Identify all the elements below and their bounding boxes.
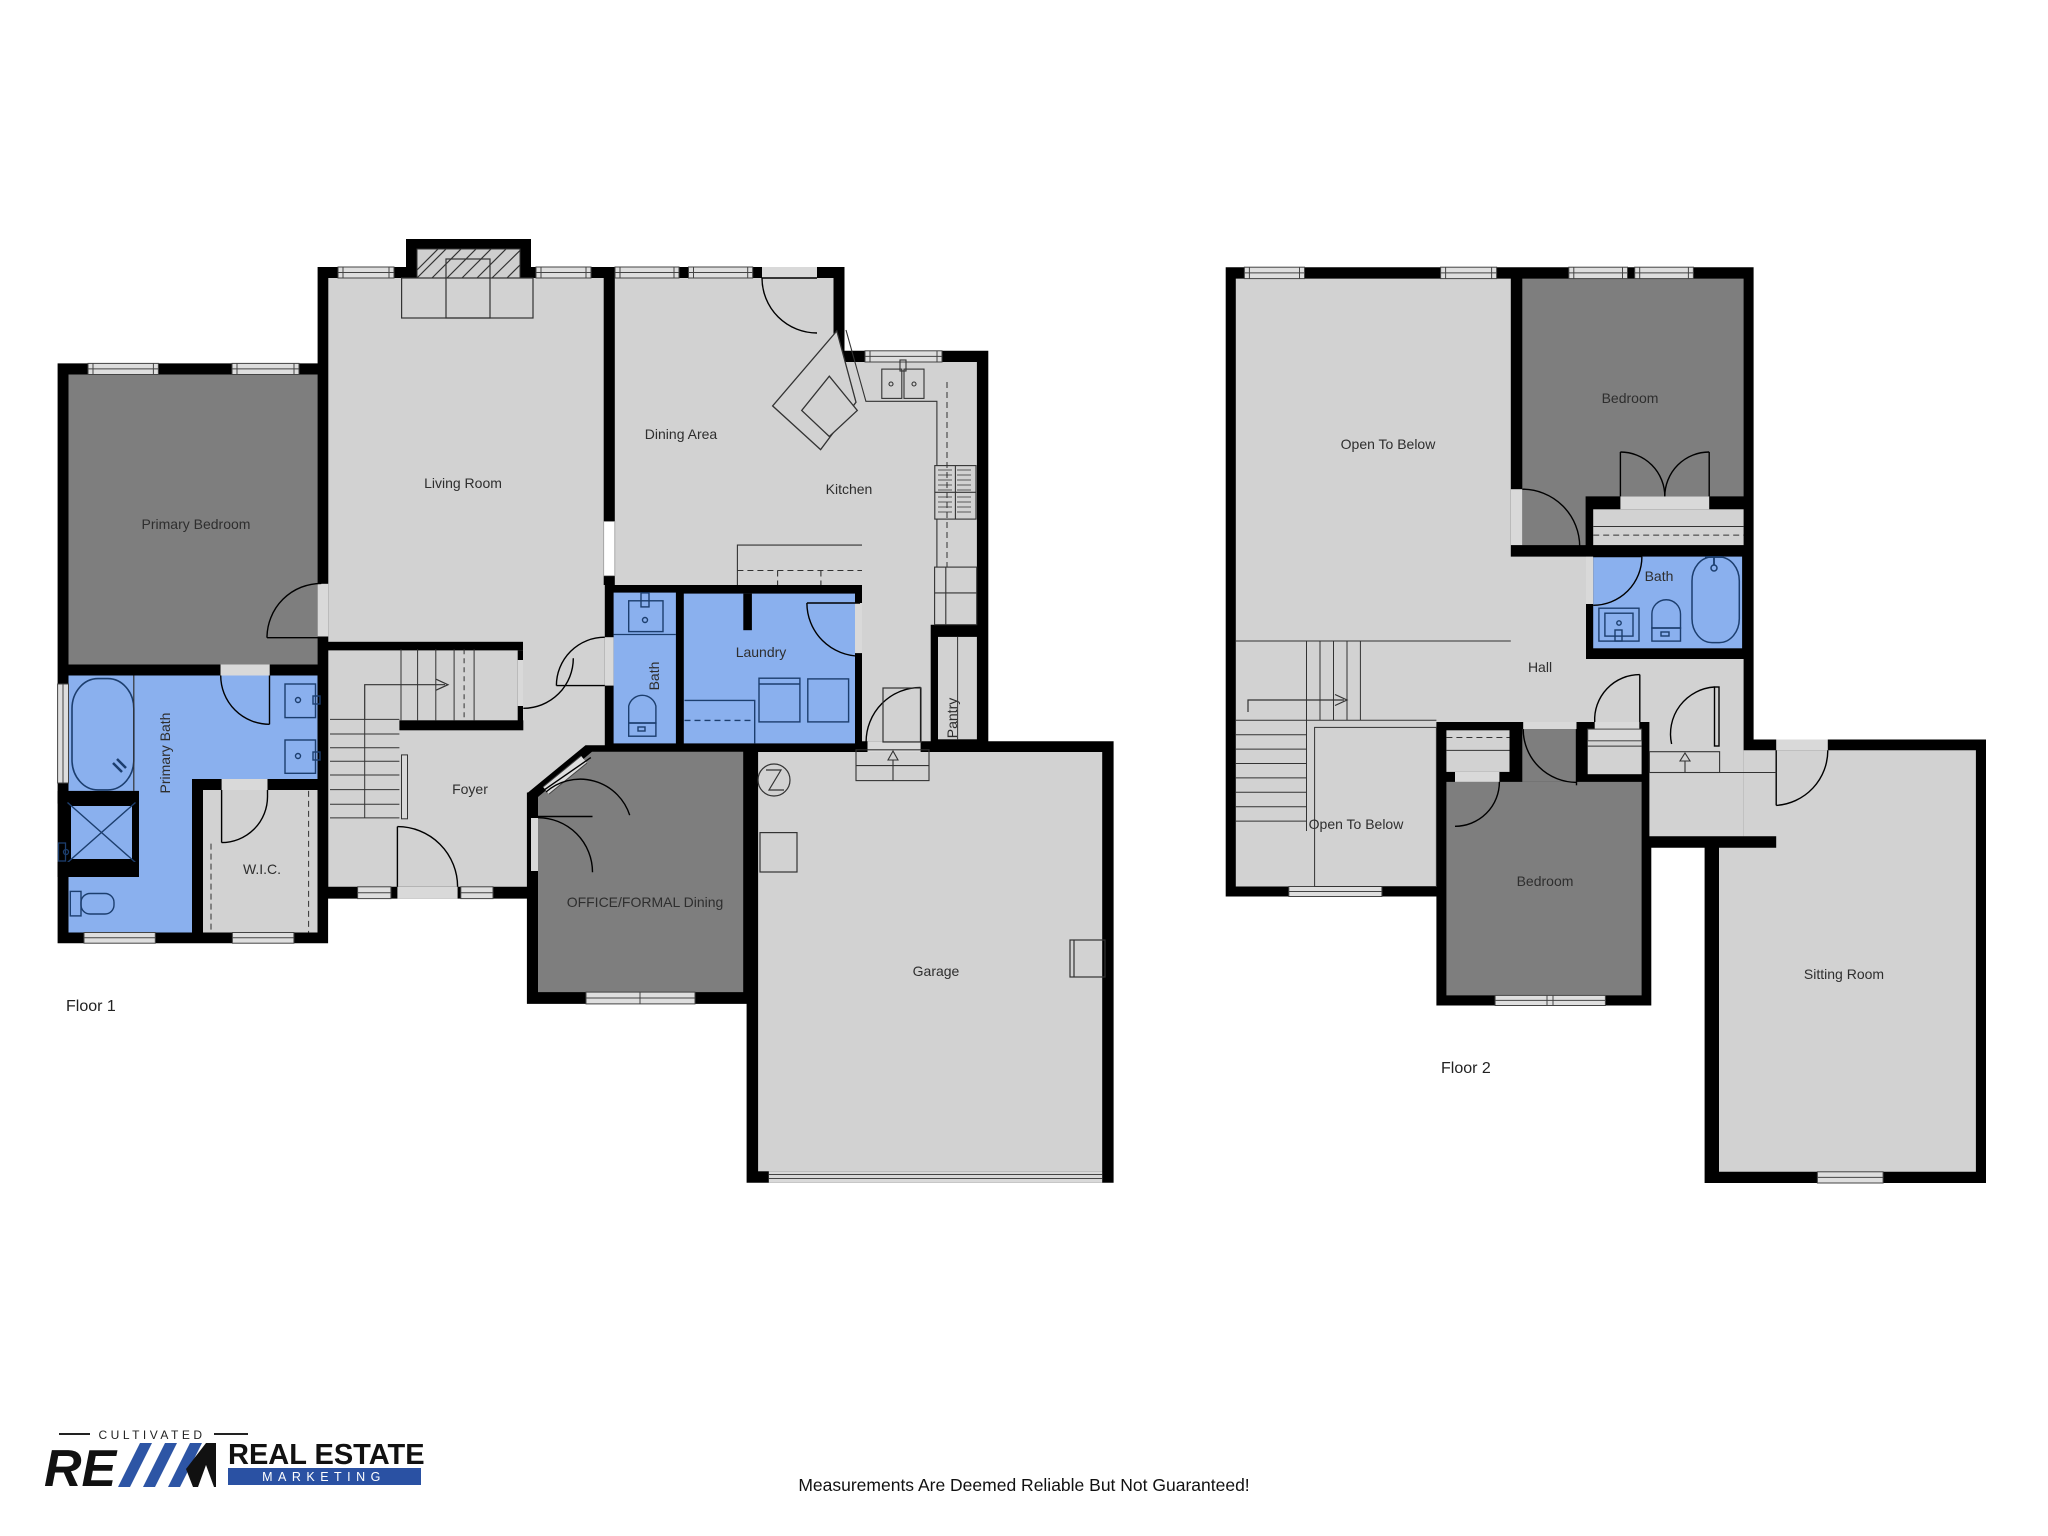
svg-text:REAL ESTATE: REAL ESTATE [228, 1439, 425, 1471]
svg-text:Foyer: Foyer [452, 781, 488, 797]
svg-text:Laundry: Laundry [736, 644, 787, 660]
svg-text:Bath: Bath [646, 662, 662, 691]
svg-text:MARKETING: MARKETING [262, 1470, 386, 1484]
svg-text:OFFICE/FORMAL Dining: OFFICE/FORMAL Dining [567, 894, 724, 910]
svg-text:Pantry: Pantry [944, 698, 960, 738]
svg-text:Primary Bath: Primary Bath [157, 713, 173, 794]
svg-text:Bath: Bath [1645, 568, 1674, 584]
svg-text:Measurements Are Deemed Reliab: Measurements Are Deemed Reliable But Not… [798, 1475, 1249, 1495]
svg-text:Sitting Room: Sitting Room [1804, 966, 1884, 982]
svg-text:Hall: Hall [1528, 659, 1552, 675]
svg-text:Dining Area: Dining Area [645, 426, 718, 442]
svg-text:Bedroom: Bedroom [1602, 390, 1659, 406]
svg-text:Garage: Garage [913, 963, 960, 979]
svg-text:Floor 1: Floor 1 [66, 998, 116, 1015]
svg-text:Open To Below: Open To Below [1341, 436, 1437, 452]
svg-text:Living Room: Living Room [424, 475, 502, 491]
svg-text:Primary Bedroom: Primary Bedroom [142, 516, 251, 532]
svg-text:Floor 2: Floor 2 [1441, 1060, 1491, 1077]
svg-text:W.I.C.: W.I.C. [243, 861, 281, 877]
svg-text:RE: RE [44, 1440, 118, 1498]
svg-text:Bedroom: Bedroom [1517, 873, 1574, 889]
svg-text:Kitchen: Kitchen [826, 481, 873, 497]
svg-text:Open To Below: Open To Below [1309, 816, 1405, 832]
